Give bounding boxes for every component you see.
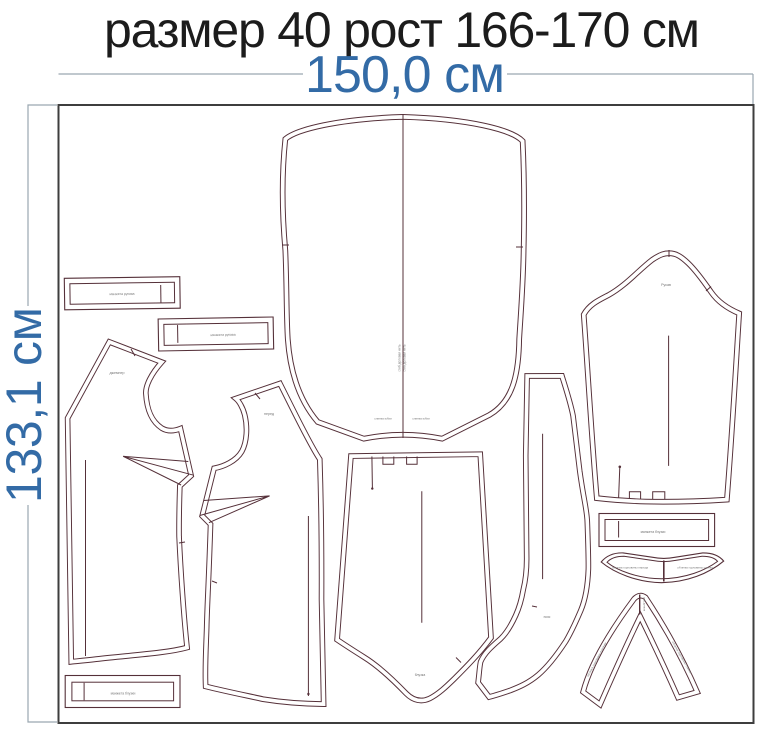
svg-text:пояс: пояс (544, 615, 551, 619)
svg-text:сгиб долевая нить: сгиб долевая нить (403, 344, 407, 371)
svg-text:перед: перед (264, 412, 275, 416)
svg-text:150,0 см: 150,0 см (305, 46, 505, 104)
svg-text:обтачка горловины спинки: обтачка горловины спинки (677, 565, 713, 569)
svg-text:сгиб детали: сгиб детали (643, 597, 647, 612)
svg-text:джемпер: джемпер (110, 371, 125, 375)
svg-text:Рукав: Рукав (661, 283, 671, 287)
svg-text:спинка юбки: спинка юбки (374, 417, 392, 421)
svg-text:133,1 см: 133,1 см (0, 307, 52, 503)
svg-text:сгиб долевая нить: сгиб долевая нить (398, 344, 402, 371)
svg-text:обтачка горловины переда: обтачка горловины переда (612, 565, 648, 569)
svg-text:спинка юбки: спинка юбки (412, 417, 430, 421)
svg-text:блузка: блузка (415, 673, 426, 677)
svg-text:манжета рукава: манжета рукава (210, 333, 235, 337)
svg-text:манжета блузки: манжета блузки (111, 692, 136, 696)
svg-text:манжета блузки: манжета блузки (641, 530, 666, 534)
svg-text:манжета рукава: манжета рукава (109, 292, 134, 296)
